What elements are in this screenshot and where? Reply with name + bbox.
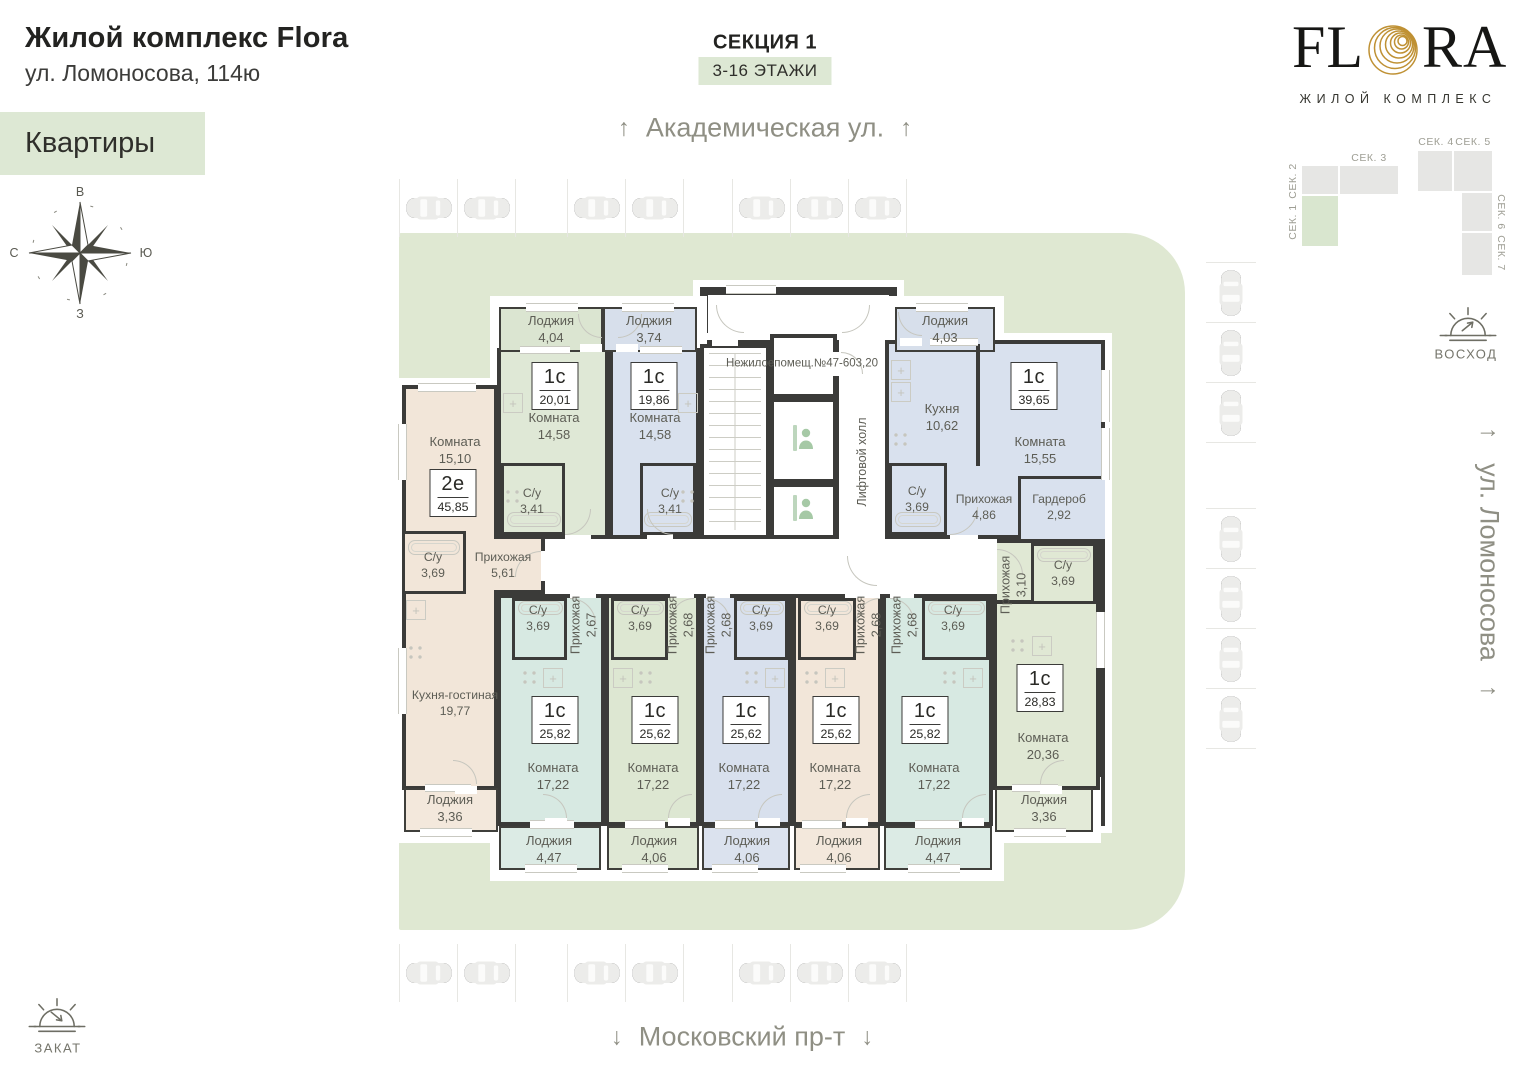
window [715,820,755,829]
corridor [545,539,997,594]
door-opening [668,818,690,826]
parking-column-right [1206,508,1256,749]
parking-row-bottom [399,944,516,1002]
sink-icon [1032,636,1052,656]
stairs-icon [709,353,761,530]
window [520,346,570,354]
street-right: ↑ ул. Ломоносова ↑ [1474,427,1505,697]
sunrise-label: ВОСХОД [1435,347,1498,362]
sink-icon [406,600,426,620]
window [398,648,407,714]
minimap-label-sec3: СЕК. 3 [1351,152,1386,164]
room-label: Комната15,10 [430,433,481,467]
room-label: С/у3,69 [421,549,445,581]
window [726,285,776,294]
room-label: Комната17,22 [528,759,579,793]
parking-space [848,944,907,1002]
room-label: Лоджия4,03 [922,312,968,346]
room-label: Лоджия4,06 [724,832,770,866]
door-opening [950,535,978,543]
room-label: Лоджия4,06 [816,832,862,866]
door-opening [989,551,997,581]
minimap-label-sec6: СЕК. 6 [1495,194,1507,229]
door-opening [962,818,984,826]
window [640,346,682,354]
car-icon [574,954,620,992]
room-label: Кухня-гостиная19,77 [412,687,498,719]
apartment-badge: 2е45,85 [429,469,476,517]
compass-letter-right: Ю [140,246,153,260]
room-label: С/у3,69 [628,602,652,634]
room-label: С/у3,69 [526,602,550,634]
sink-icon [503,393,523,413]
parking-space [625,179,684,237]
parking-space [1206,508,1256,568]
stove-icon [1008,636,1027,655]
sink-icon [765,668,785,688]
room-label: С/у3,69 [1051,557,1075,589]
stove-icon [636,668,655,687]
parking-space [1206,322,1256,382]
apartment-badge: 1с25,62 [631,696,678,744]
car-icon [1212,576,1250,622]
flora-logo: FL RA [1292,16,1507,78]
section-title: СЕКЦИЯ 1 [713,32,817,55]
room-label: Прихожая4,86 [956,491,1012,523]
room-label: Прихожая2,68 [703,596,736,654]
arrow-icon: ↑ [1475,685,1503,697]
room-label: Прихожая5,61 [475,549,531,581]
stove-icon [940,668,959,687]
apartment-badge: 1с25,62 [812,696,859,744]
logo-subtitle: ЖИЛОЙ КОМПЛЕКС [1288,92,1508,106]
minimap-label-sec2: СЕК. 2 [1287,163,1299,198]
room-label: С/у3,69 [905,483,929,515]
parking-space [567,944,625,1002]
room-label: Комната14,58 [529,409,580,443]
car-icon [797,954,843,992]
door-opening [541,551,549,581]
sink-icon [825,668,845,688]
parking-row-top [732,179,907,237]
elevator-icon [792,494,816,522]
sunset-label: ЗАКАТ [34,1041,81,1056]
window [1014,828,1066,837]
section-floors-badge: 3-16 ЭТАЖИ [698,57,831,85]
room-label: Комната17,22 [719,759,770,793]
stove-icon [406,643,425,662]
window [1096,612,1105,668]
street-bottom-label: Московский пр-т [639,1022,845,1053]
car-icon [1212,636,1250,682]
minimap-block-sec7 [1462,233,1492,275]
room-label: Лоджия4,04 [528,312,574,346]
car-icon [739,189,785,227]
interior-wall [976,344,980,466]
room-label: Гардероб2,92 [1032,491,1086,523]
parking-space [1206,628,1256,688]
minimap-block-sec3 [1340,166,1398,194]
sink-icon [678,393,698,413]
stove-icon [742,668,761,687]
parking-space [399,944,457,1002]
parking-space [848,179,907,237]
logo-text-right: RA [1422,17,1507,77]
car-icon [855,954,901,992]
sink-icon [613,668,633,688]
sunrise-icon [1437,303,1499,347]
apartment-badge: 1с19,86 [630,362,677,410]
apartment-badge: 1с39,65 [1010,362,1057,410]
car-icon [406,189,452,227]
minimap-label-sec4: СЕК. 4 [1418,136,1453,148]
car-icon [1212,330,1250,376]
room-label: Лоджия4,06 [631,832,677,866]
minimap-block-sec4 [1418,151,1452,191]
arrow-icon: ↑ [1475,427,1503,439]
parking-row-bottom [732,944,907,1002]
car-icon [632,954,678,992]
door-opening [580,344,602,352]
apartment-badge: 1с25,82 [531,696,578,744]
parking-space [732,179,790,237]
street-right-label: ул. Ломоносова [1474,463,1505,661]
car-icon [739,954,785,992]
minimap-block-sec6 [1462,193,1492,231]
car-icon [797,189,843,227]
nonresidential-label: Нежилоепомещ.№47-603,20 [726,357,878,372]
parking-space [399,179,457,237]
parking-row-top [567,179,684,237]
window [1101,370,1110,422]
room-label: Лоджия3,36 [1021,791,1067,825]
room-label: Кухня10,62 [925,400,960,434]
car-icon [406,954,452,992]
car-icon [1212,516,1250,562]
parking-space [1206,262,1256,322]
logo-spiral-icon [1366,20,1420,78]
room-label: Комната17,22 [628,759,679,793]
compass-letter-left: С [9,246,18,260]
parking-space [1206,688,1256,749]
stove-icon [802,668,821,687]
apartment-badge: 1с28,83 [1016,664,1063,712]
sink-icon [891,360,911,380]
door-opening [545,818,567,826]
parking-space [567,179,625,237]
parking-column-right [1206,262,1256,443]
window [420,828,472,837]
sink-icon [963,668,983,688]
door-opening [565,535,591,543]
street-bottom: ↓ Московский пр-т ↓ [611,1022,873,1053]
door-opening [900,338,922,346]
window [1101,428,1110,480]
room-label: С/у3,69 [749,602,773,634]
compass-letter-top: В [76,185,84,199]
minimap-block-sec1-highlighted [1302,196,1338,246]
room-label: Прихожая3,10 [998,556,1031,614]
window [418,383,476,392]
minimap-label-sec7: СЕК. 7 [1495,235,1507,270]
car-icon [1212,696,1250,742]
stove-icon [891,430,910,449]
room-label: Комната17,22 [909,759,960,793]
page-address: ул. Ломоносова, 114ю [25,60,260,87]
door-opening [647,535,673,543]
tab-apartments[interactable]: Квартиры [0,112,205,175]
apartment-badge: 1с20,01 [531,362,578,410]
room-label: С/у3,69 [815,602,839,634]
arrow-up-icon: ↑ [618,114,630,142]
car-icon [1212,390,1250,436]
arrow-up-icon: ↑ [900,114,912,142]
sink-icon [543,668,563,688]
room-label: Комната15,55 [1015,433,1066,467]
window [916,303,968,312]
parking-space [457,179,516,237]
parking-row-bottom [567,944,684,1002]
parking-space [1206,568,1256,628]
washer-icon [891,382,911,402]
room-label: С/у3,41 [658,485,682,517]
window [802,820,842,829]
tab-apartments-label: Квартиры [0,127,155,160]
room-label: Комната17,22 [810,759,861,793]
room-label: Комната14,58 [630,409,681,443]
apartment-badge: 1с25,82 [901,696,948,744]
room-label: Прихожая2,67 [568,596,601,654]
apartment-badge: 1с25,62 [722,696,769,744]
arrow-down-icon: ↓ [861,1023,873,1051]
room-label: Прихожая2,68 [853,596,886,654]
minimap-block-sec5 [1454,151,1492,191]
window [526,303,578,312]
street-top-label: Академическая ул. [646,113,884,144]
door-opening [712,338,738,346]
minimap-label-sec1: СЕК. 1 [1287,204,1299,239]
parking-space [790,179,848,237]
sunset-icon [26,994,88,1038]
compass-letter-bottom: З [76,307,84,321]
room-label: Лоджия4,47 [915,832,961,866]
room-label: Лоджия4,47 [526,832,572,866]
room-label: Лоджия3,36 [427,791,473,825]
logo-text-left: FL [1292,17,1364,77]
window [398,424,407,480]
minimap-block-sec2 [1302,166,1338,194]
car-icon [855,189,901,227]
lift-hall-label: Лифтовой холл [854,417,870,506]
parking-row-top [399,179,516,237]
parking-space [732,944,790,1002]
window [622,303,674,312]
parking-space [790,944,848,1002]
car-icon [632,189,678,227]
stairwell [700,344,770,539]
compass-icon [25,198,135,308]
car-icon [464,954,510,992]
room-label: Лоджия3,74 [626,312,672,346]
page-title: Жилой комплекс Flora [25,22,349,55]
room-label: Прихожая2,68 [665,596,698,654]
room-label: С/у3,41 [520,485,544,517]
street-top: ↑ Академическая ул. ↑ [618,113,912,144]
stove-icon [520,668,539,687]
window [915,820,959,829]
window [625,820,665,829]
car-icon [1212,270,1250,316]
car-icon [574,189,620,227]
parking-space [1206,382,1256,443]
elevator-icon [792,424,816,452]
room-label: Прихожая2,68 [889,596,922,654]
room-label: С/у3,69 [941,602,965,634]
minimap-label-sec5: СЕК. 5 [1455,136,1490,148]
parking-space [457,944,516,1002]
car-icon [464,189,510,227]
arrow-down-icon: ↓ [611,1023,623,1051]
room-label: Комната20,36 [1018,729,1069,763]
floor-plan-page: Жилой комплекс Flora ул. Ломоносова, 114… [0,0,1532,1080]
parking-space [625,944,684,1002]
door-opening [758,818,780,826]
door-opening [846,818,868,826]
